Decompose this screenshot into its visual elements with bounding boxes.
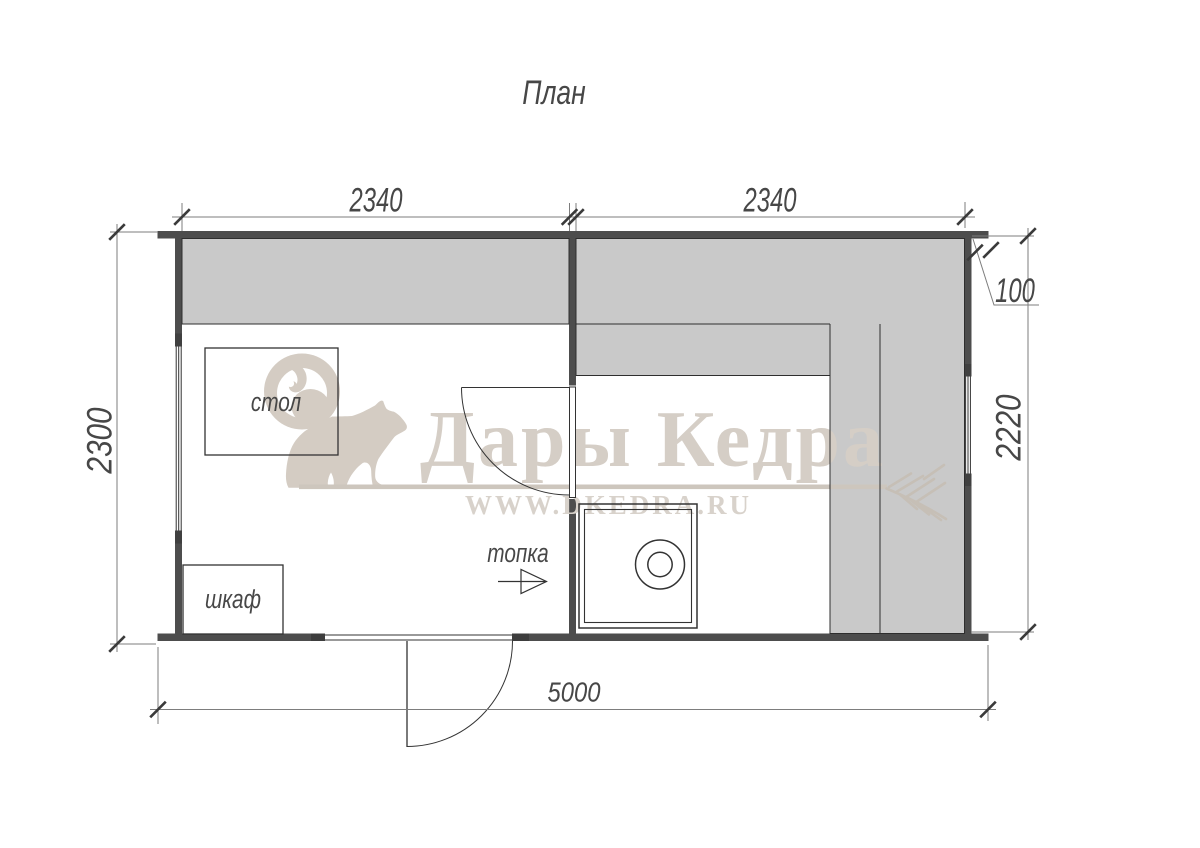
svg-text:топка: топка [487, 539, 548, 568]
svg-text:2300: 2300 [80, 407, 119, 474]
svg-text:2340: 2340 [743, 181, 797, 219]
svg-text:Дары Кедра: Дары Кедра [420, 396, 883, 484]
svg-text:План: План [522, 74, 586, 112]
svg-text:100: 100 [995, 272, 1035, 310]
svg-text:5000: 5000 [548, 676, 601, 708]
svg-text:2220: 2220 [989, 394, 1028, 461]
svg-text:шкаф: шкаф [205, 585, 261, 614]
svg-text:стол: стол [251, 388, 301, 417]
svg-text:2340: 2340 [349, 181, 403, 219]
